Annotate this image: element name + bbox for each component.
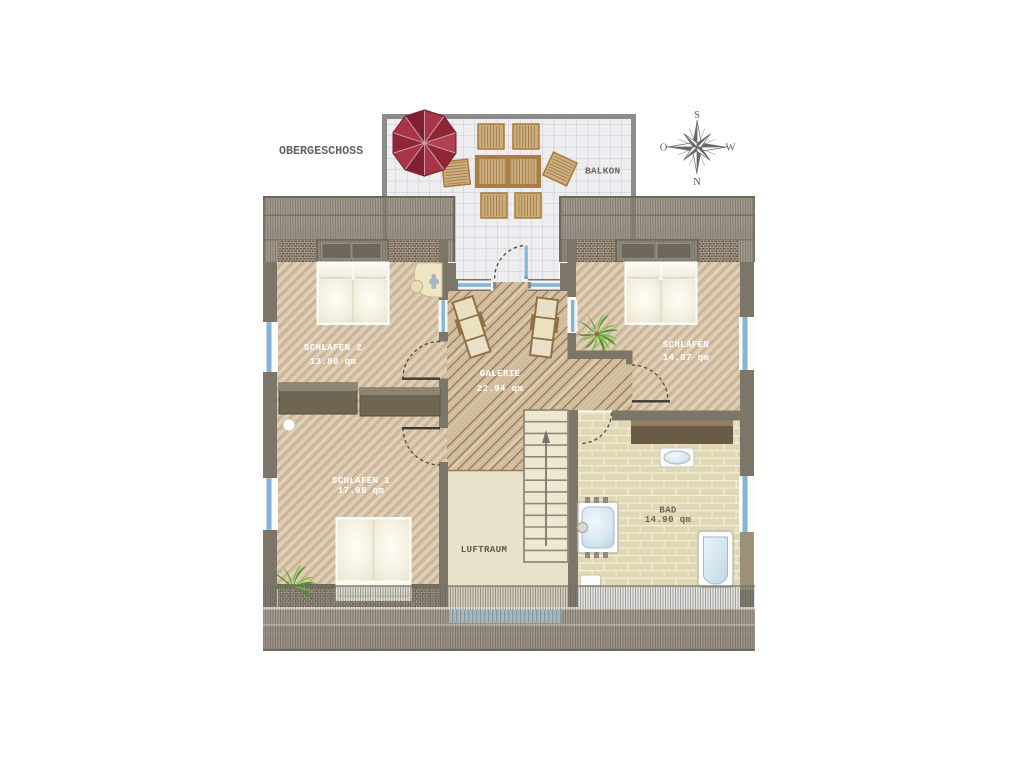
svg-text:17.96 qm: 17.96 qm xyxy=(338,485,385,496)
svg-text:GALERIE: GALERIE xyxy=(480,368,521,379)
svg-text:22.94 qm: 22.94 qm xyxy=(477,383,524,394)
svg-text:SCHLAFEN: SCHLAFEN xyxy=(663,339,710,350)
svg-text:14.90 qm: 14.90 qm xyxy=(645,514,692,525)
svg-text:O: O xyxy=(660,143,668,154)
svg-text:N: N xyxy=(693,177,701,188)
svg-text:W: W xyxy=(726,143,736,154)
svg-text:OBERGESCHOSS: OBERGESCHOSS xyxy=(279,144,363,158)
svg-text:BALKON: BALKON xyxy=(585,166,621,177)
svg-text:14.87 qm: 14.87 qm xyxy=(663,352,710,363)
svg-text:SCHLAFEN 2: SCHLAFEN 2 xyxy=(304,342,362,353)
svg-text:13.80 qm: 13.80 qm xyxy=(310,356,357,367)
svg-text:S: S xyxy=(694,110,700,121)
svg-text:LUFTRAUM: LUFTRAUM xyxy=(461,544,508,555)
